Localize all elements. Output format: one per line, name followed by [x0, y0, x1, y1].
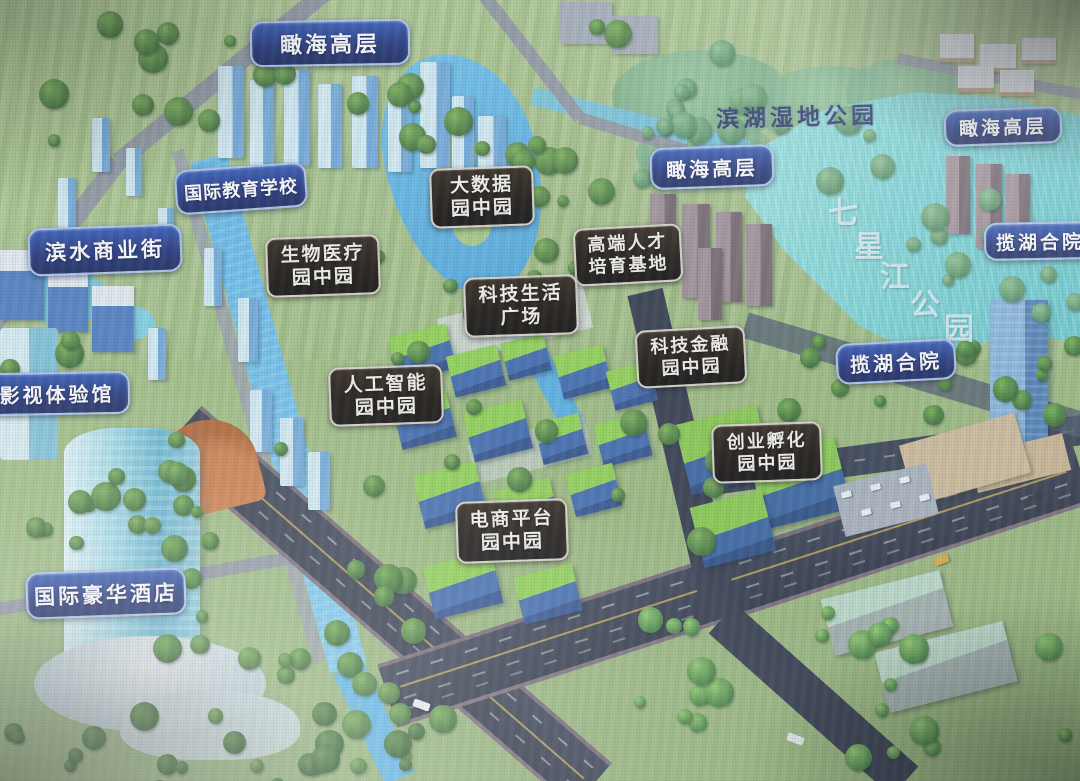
label-text: 影视体验馆	[0, 378, 115, 409]
label-talent-cultivation-base: 高端人才 培育基地	[573, 223, 684, 287]
label-startup-incubation-park: 创业孵化 园中园	[711, 421, 823, 484]
label-kanhai-mid: 瞰海高层	[649, 144, 774, 190]
label-text-line1: 电商平台	[469, 507, 554, 533]
label-text-line2: 园中园	[737, 451, 798, 475]
label-text-line2: 培育基地	[588, 253, 669, 279]
label-text-line1: 科技生活	[478, 282, 563, 308]
label-qixingjiang-park: 七星江公园	[0, 0, 1080, 781]
label-kanhai-right: 瞰海高层	[943, 106, 1062, 147]
label-text-line1: 创业孵化	[726, 430, 807, 454]
label-text: 瞰海高层	[959, 111, 1048, 141]
label-text-line2: 园中园	[451, 196, 515, 221]
label-text-line1: 生物医疗	[280, 242, 365, 268]
label-text-line2: 广场	[500, 305, 543, 329]
label-binhu-wetland-park: 滨湖湿地公园	[716, 98, 879, 132]
label-text: 瞰海高层	[280, 26, 381, 60]
label-text-line2: 园中园	[661, 355, 722, 380]
label-tech-finance-park: 科技金融 园中园	[635, 325, 748, 389]
label-intl-luxury-hotel: 国际豪华酒店	[25, 567, 187, 620]
label-text: 滨水商业街	[45, 233, 166, 267]
label-ai-park: 人工智能 园中园	[328, 364, 444, 427]
label-bio-medical-park: 生物医疗 园中园	[265, 234, 381, 298]
label-text-line1: 人工智能	[343, 371, 428, 397]
label-lanhu-right: 揽湖合院	[984, 221, 1080, 261]
label-text: 国际教育学校	[183, 172, 299, 206]
label-lanhu-mid: 揽湖合院	[835, 338, 957, 385]
label-text: 国际豪华酒店	[34, 576, 179, 611]
label-text: 瞰海高层	[666, 151, 759, 183]
label-kanhai-top: 瞰海高层	[250, 19, 411, 68]
label-binshui-commercial-street: 滨水商业街	[27, 223, 183, 276]
label-text-line2: 园中园	[481, 530, 545, 555]
label-text: 揽湖合院	[996, 227, 1080, 256]
label-tech-life-plaza: 科技生活 广场	[463, 274, 579, 338]
label-ecommerce-platform-park: 电商平台 园中园	[455, 498, 569, 564]
label-text-line1: 大数据	[450, 173, 514, 198]
water-label-char: 公	[910, 280, 940, 324]
masterplan-photo: 七星江公园 瞰海高层 滨湖湿地公园 瞰海高层 瞰海高层 揽湖合院 国际教育学校 …	[0, 0, 1080, 781]
label-film-tv-experience-hall: 影视体验馆	[0, 371, 130, 417]
label-text: 滨湖湿地公园	[716, 96, 879, 134]
water-label-char: 江	[880, 252, 910, 296]
label-big-data-park: 大数据 园中园	[429, 165, 535, 229]
label-intl-education-school: 国际教育学校	[174, 161, 309, 215]
label-text-line2: 园中园	[292, 265, 356, 290]
label-text-line2: 园中园	[355, 394, 419, 419]
label-text: 揽湖合院	[849, 345, 942, 379]
